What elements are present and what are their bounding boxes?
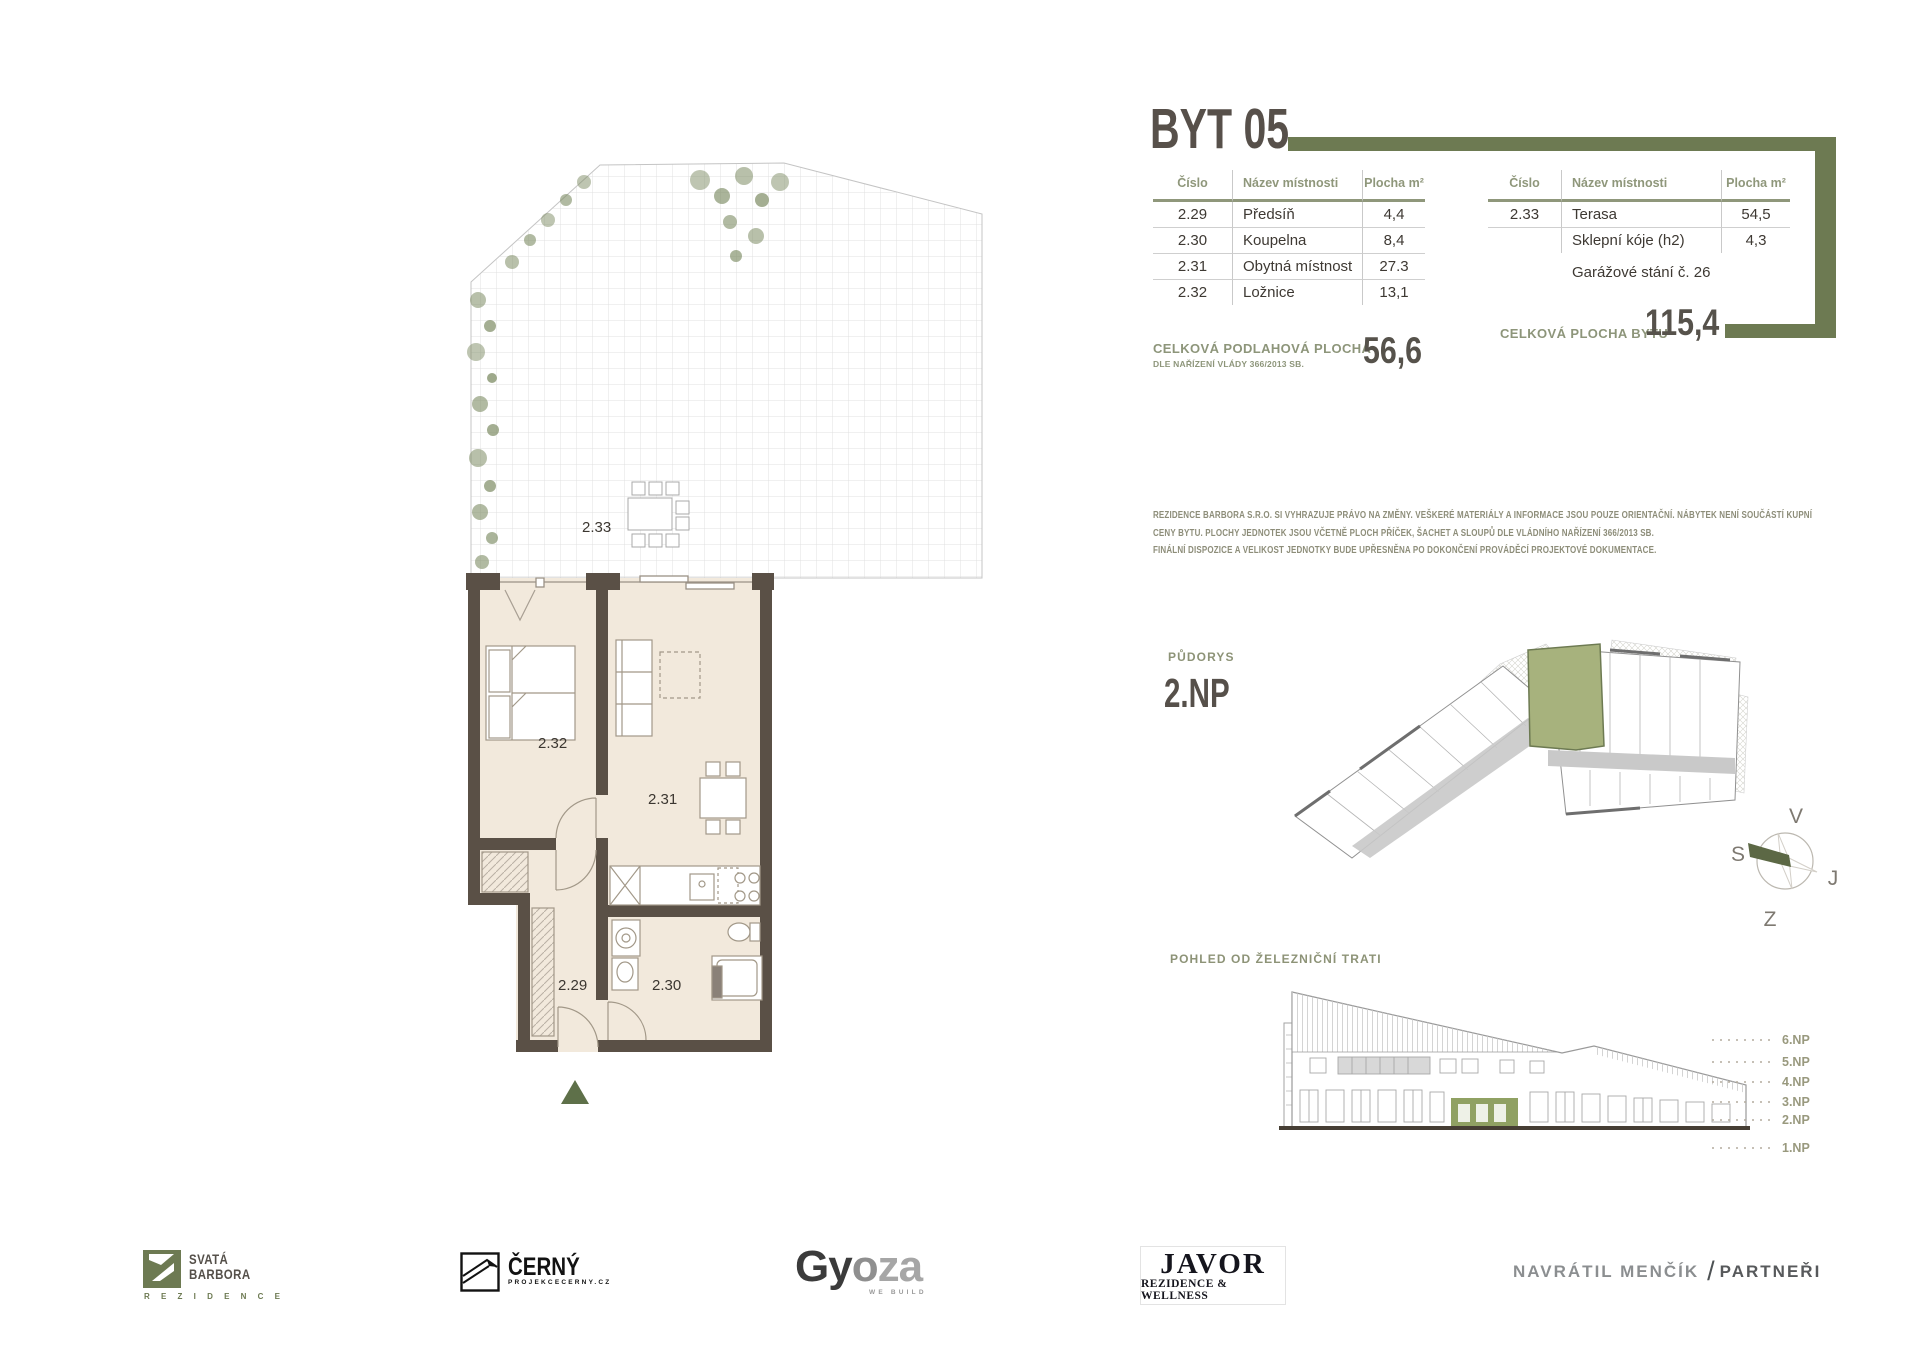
logo-cerny: ČERNÝ PROJEKCECERNY.CZ (460, 1252, 611, 1292)
logo-javor: JAVOR REZIDENCE & WELLNESS (1140, 1246, 1286, 1305)
room-table-main: Číslo Název místnosti Plocha m² 2.29 Pře… (1153, 170, 1425, 305)
legal-disclaimer: REZIDENCE BARBORA S.R.O. SI VYHRAZUJE PR… (1153, 507, 1841, 560)
room-table-exterior: Číslo Název místnosti Plocha m² 2.33 Ter… (1488, 170, 1790, 253)
total-floor-area-value: 56,6 (1363, 330, 1435, 372)
javor-subtitle: REZIDENCE & WELLNESS (1141, 1278, 1285, 1302)
navratil-partners: PARTNEŘI (1720, 1262, 1822, 1282)
col-header-area: Plocha m² (1363, 170, 1425, 202)
col-header-name: Název místnosti (1562, 170, 1722, 202)
compass-south-label: J (1828, 867, 1839, 890)
compass-east-label: V (1789, 805, 1803, 828)
disclaimer-line: CENY BYTU. PLOCHY JEDNOTEK JSOU VČETNĚ P… (1153, 525, 1841, 543)
logo-navratil-mencik: NAVRÁTIL MENČÍK / PARTNEŘI (1513, 1256, 1821, 1287)
floor-label-1np: 1.NP (1782, 1141, 1810, 1155)
highlighted-unit (1528, 644, 1604, 750)
svata-barbora-name-line1: SVATÁ (189, 1252, 264, 1267)
total-floor-area-sublabel: DLE NAŘÍZENÍ VLÁDY 366/2013 SB. (1153, 359, 1371, 369)
compass-north-label: S (1731, 843, 1745, 866)
svata-barbora-name-line2: BARBORA (189, 1267, 264, 1282)
accent-bar-bottom (1725, 324, 1836, 338)
compass-west-label: Z (1764, 908, 1777, 931)
col-header-name: Název místnosti (1233, 170, 1363, 202)
floor-label-4np: 4.NP (1782, 1075, 1810, 1089)
apartment-datasheet-page: 2.33 2.32 2.31 2.29 2.30 (0, 0, 1920, 1357)
javor-name: JAVOR (1160, 1250, 1266, 1278)
entrance-arrow-icon (561, 1080, 589, 1104)
compass-icon: V S J Z (1731, 805, 1838, 931)
room-label-living: 2.31 (648, 791, 677, 808)
room-label-bedroom: 2.32 (538, 735, 567, 752)
cerny-icon (460, 1252, 500, 1292)
page-title: BYT 05 (1150, 96, 1343, 162)
total-floor-area-block: CELKOVÁ PODLAHOVÁ PLOCHA DLE NAŘÍZENÍ VL… (1153, 341, 1371, 369)
col-header-number: Číslo (1488, 170, 1562, 202)
compass-needle (1748, 843, 1791, 867)
room-label-bath: 2.30 (652, 977, 681, 994)
floor-overview-minimap (1295, 640, 1748, 858)
room-label-terrace: 2.33 (582, 519, 611, 536)
logo-svata-barbora: SVATÁ BARBORA (143, 1250, 264, 1288)
room-label-hall: 2.29 (558, 977, 587, 994)
gyoza-subtitle: WE BUILD (869, 1289, 927, 1296)
navratil-slash: / (1707, 1256, 1715, 1287)
col-header-number: Číslo (1153, 170, 1233, 202)
svata-barbora-subtitle: R E Z I D E N C E (144, 1292, 285, 1301)
total-floor-area-label: CELKOVÁ PODLAHOVÁ PLOCHA (1153, 341, 1371, 356)
col-header-area: Plocha m² (1722, 170, 1790, 202)
elevation-section-label: POHLED OD ŽELEZNIČNÍ TRATI (1170, 952, 1382, 966)
total-apartment-area-value: 115,4 (1645, 302, 1736, 344)
overview-floor-number: 2.NP (1164, 670, 1255, 717)
accent-bar-top (1288, 137, 1836, 151)
disclaimer-line: FINÁLNÍ DISPOZICE A VELIKOST JEDNOTKY BU… (1153, 542, 1841, 560)
elevation-drawing: 6.NP 5.NP 4.NP 3.NP 2.NP 1.NP (1279, 992, 1810, 1155)
floor-label-5np: 5.NP (1782, 1055, 1810, 1069)
logo-gyoza: Gyoza WE BUILD (795, 1247, 927, 1296)
accent-bar-right (1815, 137, 1836, 338)
floor-plan: 2.33 2.32 2.31 2.29 2.30 (466, 163, 982, 1104)
gyoza-name: Gyoza (795, 1247, 927, 1287)
disclaimer-line: REZIDENCE BARBORA S.R.O. SI VYHRAZUJE PR… (1153, 507, 1841, 525)
total-apartment-area-label: CELKOVÁ PLOCHA BYTU (1500, 326, 1668, 341)
overview-section-label: PŮDORYS (1168, 650, 1235, 664)
floor-label-3np: 3.NP (1782, 1095, 1810, 1109)
floor-label-2np: 2.NP (1782, 1113, 1810, 1127)
garage-note: Garážové stání č. 26 (1572, 264, 1710, 281)
cerny-name: ČERNÝ (508, 1255, 611, 1279)
navratil-name: NAVRÁTIL MENČÍK (1513, 1262, 1699, 1282)
svata-barbora-icon (143, 1250, 181, 1288)
floor-label-6np: 6.NP (1782, 1033, 1810, 1047)
